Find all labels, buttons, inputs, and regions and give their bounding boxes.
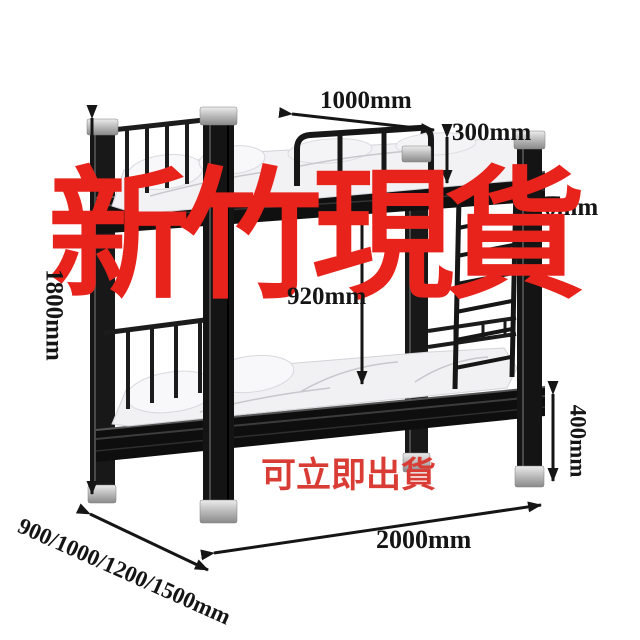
dimension-label-length: 2000mm xyxy=(376,527,471,553)
watermark-footnote: 可立即出貨 xyxy=(261,458,436,493)
dimension-label-clearance: 920mm xyxy=(287,284,366,309)
product-annotation-image: 1000mm 300mm 0mm 920mm 1800mm 400mm 2000… xyxy=(0,0,640,640)
dimension-label-legs: 400mm xyxy=(567,405,590,478)
dimension-label-guardrail: 300mm xyxy=(452,120,531,145)
arrow-top-rail-length xyxy=(292,114,434,130)
dimension-label-height: 1800mm xyxy=(42,269,67,361)
dimension-label-top-rail: 1000mm xyxy=(320,88,412,113)
